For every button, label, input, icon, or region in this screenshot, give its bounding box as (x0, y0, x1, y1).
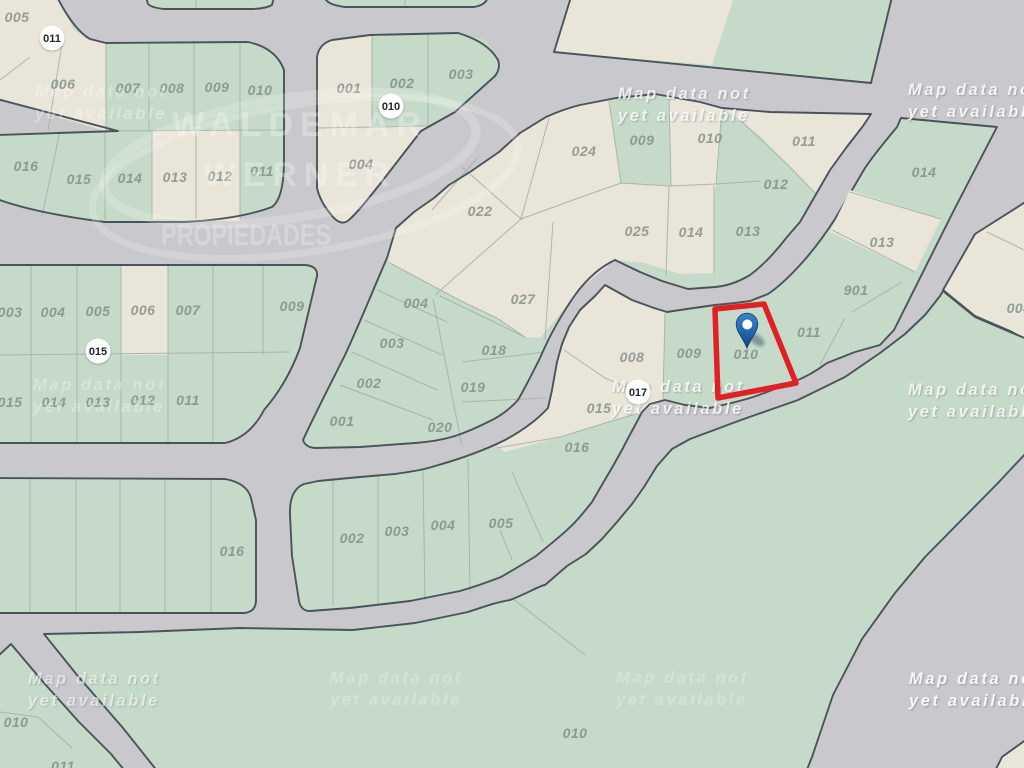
svg-text:004: 004 (431, 517, 456, 533)
svg-text:yet available: yet available (611, 400, 744, 418)
svg-text:010: 010 (248, 82, 273, 98)
svg-text:011: 011 (176, 392, 200, 408)
svg-text:008: 008 (620, 349, 645, 365)
svg-text:yet available: yet available (617, 107, 750, 125)
svg-text:003: 003 (380, 335, 405, 351)
svg-text:Map data not: Map data not (28, 670, 161, 688)
svg-text:Map data not: Map data not (618, 85, 751, 103)
svg-text:Map data not: Map data not (616, 669, 749, 687)
svg-text:003: 003 (385, 523, 410, 539)
svg-text:901: 901 (844, 282, 869, 298)
svg-text:014: 014 (679, 224, 704, 240)
svg-text:WERNER: WERNER (203, 156, 396, 194)
svg-text:015: 015 (67, 171, 92, 187)
svg-text:011: 011 (51, 758, 75, 768)
svg-text:yet available: yet available (907, 403, 1024, 421)
svg-text:010: 010 (698, 130, 723, 146)
svg-text:015: 015 (587, 400, 612, 416)
svg-text:007: 007 (176, 302, 202, 318)
svg-text:015: 015 (89, 346, 107, 358)
svg-text:004: 004 (41, 304, 66, 320)
svg-text:yet available: yet available (34, 105, 167, 123)
svg-text:002: 002 (357, 375, 382, 391)
svg-text:017: 017 (629, 387, 647, 399)
svg-text:Map data not: Map data not (35, 83, 168, 101)
svg-text:Map data not: Map data not (908, 381, 1024, 399)
svg-text:016: 016 (14, 158, 39, 174)
svg-text:002: 002 (340, 530, 365, 546)
svg-text:003: 003 (0, 304, 22, 320)
svg-text:013: 013 (163, 169, 188, 185)
svg-text:Map data not: Map data not (33, 376, 166, 394)
svg-text:yet available: yet available (329, 691, 462, 709)
svg-text:Map data not: Map data not (908, 81, 1024, 99)
svg-text:010: 010 (4, 714, 29, 730)
svg-text:018: 018 (482, 342, 507, 358)
svg-text:024: 024 (572, 143, 597, 159)
svg-text:yet available: yet available (907, 103, 1024, 121)
svg-text:011: 011 (797, 324, 821, 340)
svg-text:019: 019 (461, 379, 486, 395)
svg-text:016: 016 (565, 439, 590, 455)
svg-text:005: 005 (86, 303, 111, 319)
svg-text:025: 025 (625, 223, 650, 239)
svg-text:004: 004 (1007, 300, 1024, 316)
svg-text:013: 013 (736, 223, 761, 239)
svg-text:004: 004 (404, 295, 429, 311)
svg-text:yet available: yet available (32, 398, 165, 416)
svg-text:003: 003 (449, 66, 474, 82)
svg-text:yet available: yet available (27, 692, 160, 710)
svg-text:006: 006 (131, 302, 156, 318)
svg-text:011: 011 (43, 33, 61, 45)
svg-text:005: 005 (489, 515, 514, 531)
svg-text:Map data not: Map data not (909, 670, 1024, 688)
svg-text:009: 009 (630, 132, 655, 148)
svg-text:010: 010 (382, 101, 400, 113)
svg-text:013: 013 (870, 234, 895, 250)
svg-text:Map data not: Map data not (330, 669, 463, 687)
svg-text:014: 014 (912, 164, 937, 180)
svg-text:015: 015 (0, 394, 22, 410)
svg-text:011: 011 (792, 133, 816, 149)
svg-text:010: 010 (563, 725, 588, 741)
svg-text:014: 014 (118, 170, 143, 186)
svg-text:027: 027 (511, 291, 537, 307)
svg-text:016: 016 (220, 543, 245, 559)
svg-text:009: 009 (280, 298, 305, 314)
svg-text:010: 010 (734, 346, 759, 362)
svg-text:012: 012 (764, 176, 789, 192)
svg-text:005: 005 (5, 9, 30, 25)
svg-text:PROPIEDADES: PROPIEDADES (161, 219, 331, 252)
svg-text:009: 009 (677, 345, 702, 361)
svg-text:009: 009 (205, 79, 230, 95)
svg-text:020: 020 (428, 419, 453, 435)
svg-text:yet available: yet available (615, 691, 748, 709)
svg-text:yet available: yet available (908, 692, 1024, 710)
svg-text:001: 001 (330, 413, 355, 429)
